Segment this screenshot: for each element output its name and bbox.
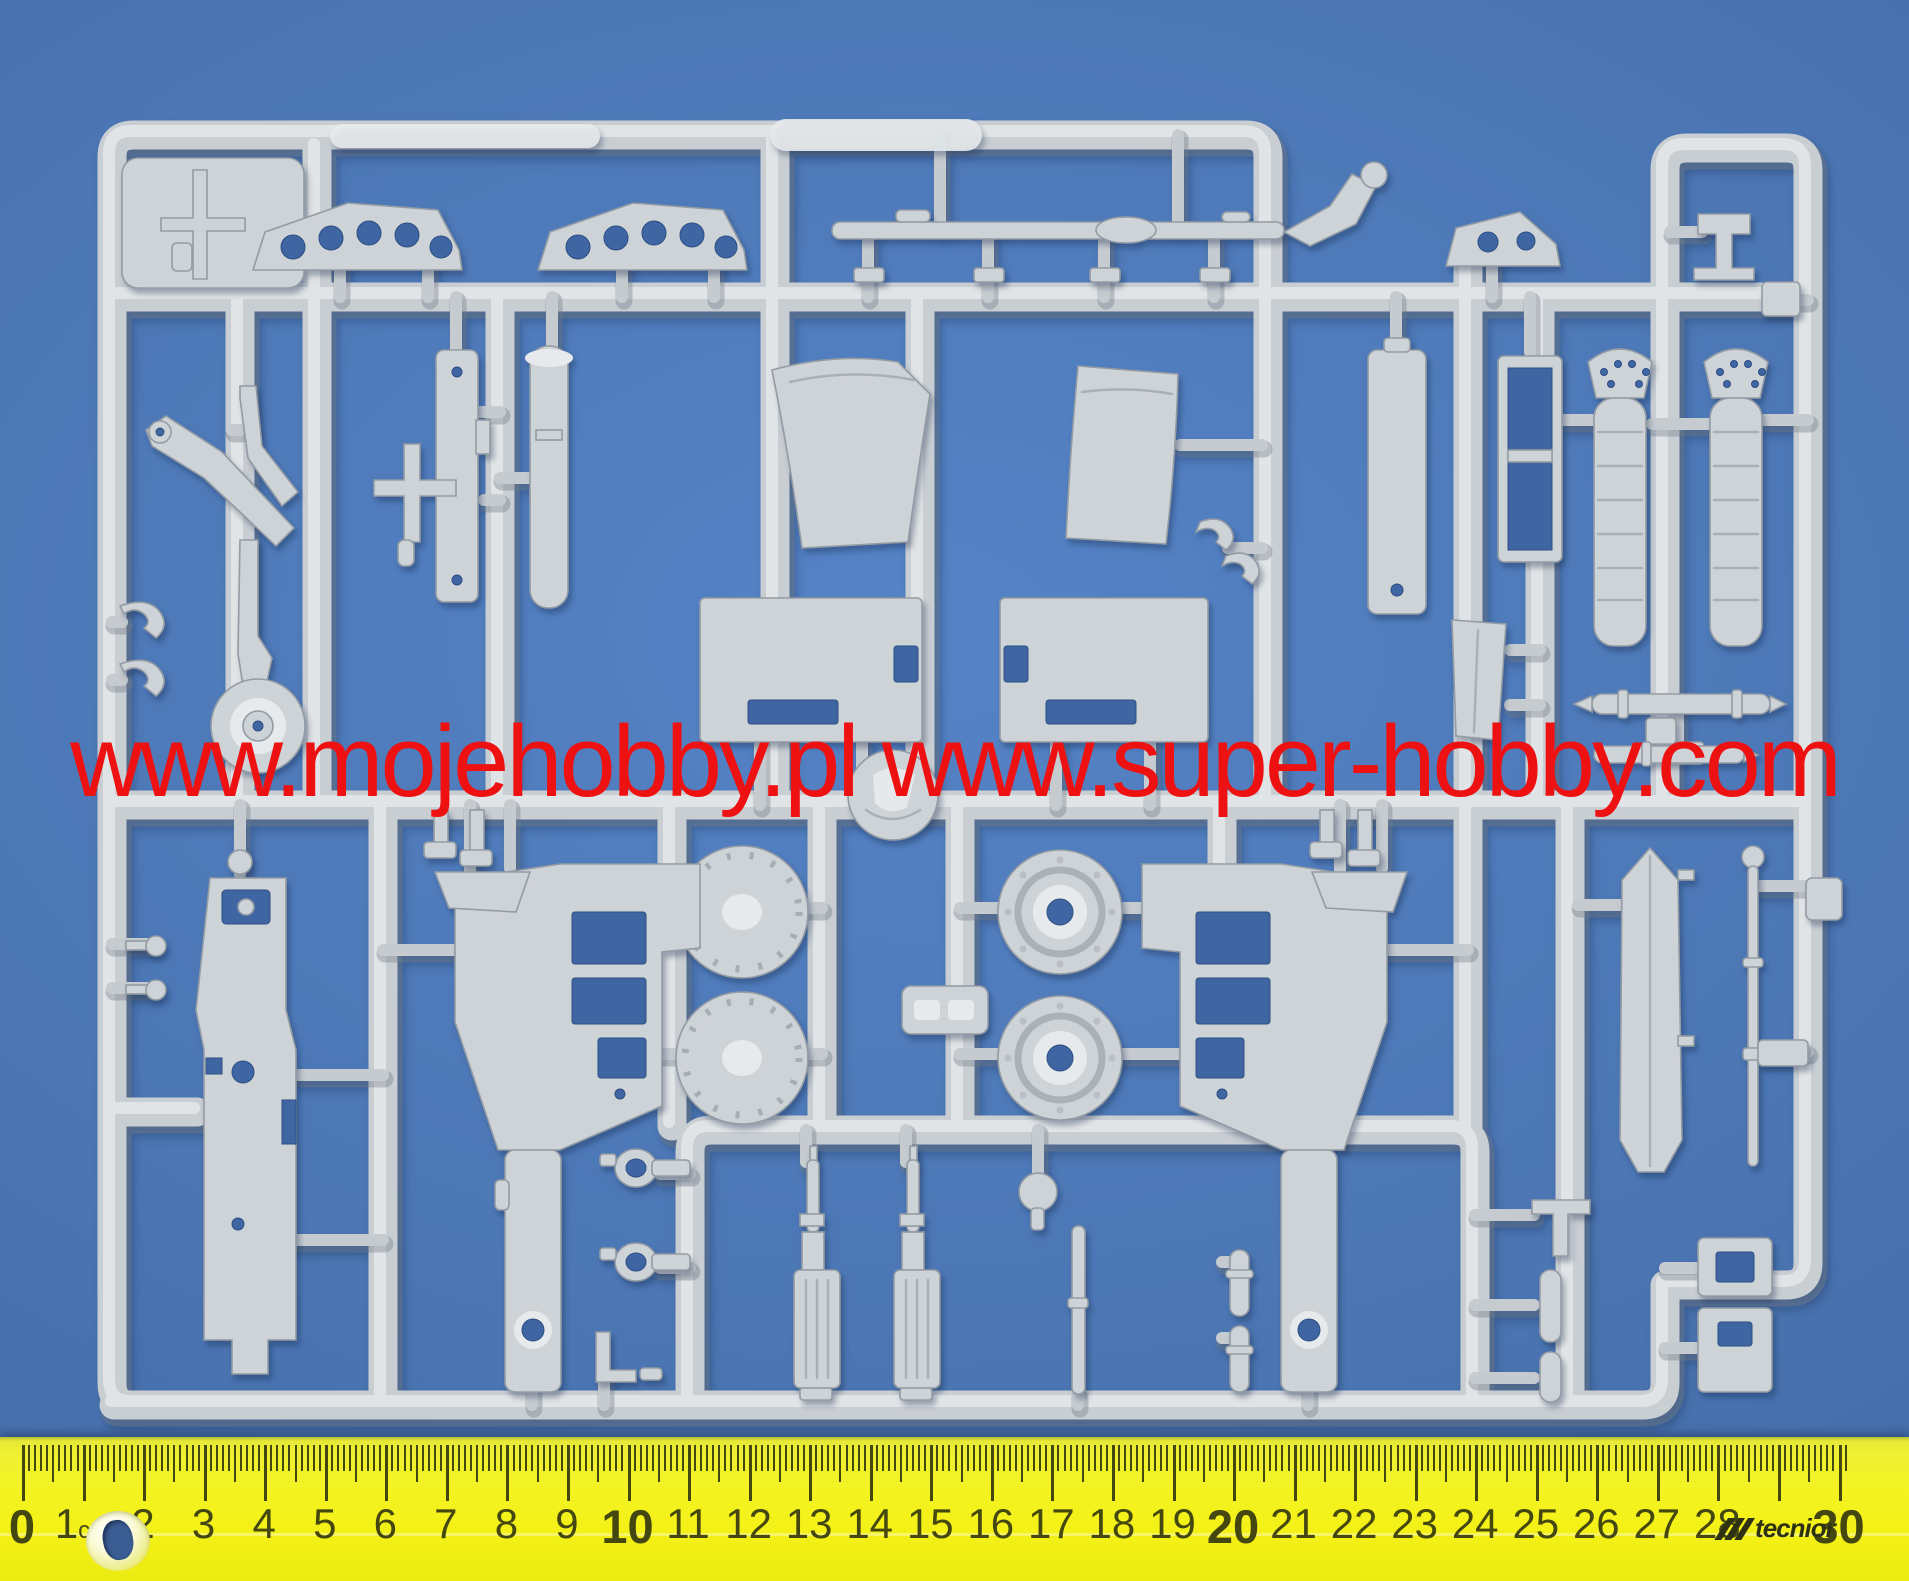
ruler-tick	[422, 1445, 424, 1471]
ruler-tick	[864, 1445, 866, 1471]
ruler-tick	[1717, 1445, 1720, 1501]
ruler-tick	[918, 1445, 920, 1471]
ruler-tick	[313, 1445, 315, 1471]
ruler-tick	[755, 1445, 757, 1471]
ruler-tick	[718, 1445, 720, 1482]
ruler-tick	[1294, 1445, 1297, 1501]
exhaust-stack-right	[1704, 349, 1768, 646]
push-rod	[1068, 1226, 1088, 1394]
ruler-tick	[228, 1445, 230, 1471]
ruler-number: 20	[1207, 1503, 1259, 1550]
ruler-tick	[1057, 1445, 1059, 1471]
ruler-tick	[1076, 1445, 1078, 1471]
ruler-tick	[1378, 1445, 1380, 1471]
ruler-tick	[846, 1445, 848, 1471]
ruler-tick	[876, 1445, 878, 1471]
ruler-tick	[1493, 1445, 1495, 1471]
ruler-tick	[1191, 1445, 1193, 1471]
ruler-tick	[28, 1445, 30, 1471]
ruler-tick	[282, 1445, 284, 1471]
ruler-seam	[0, 1533, 1909, 1536]
ruler-tick	[1796, 1445, 1798, 1471]
ruler-tick	[1263, 1445, 1265, 1482]
ruler-tick	[1088, 1445, 1090, 1471]
ruler-tick	[1820, 1445, 1822, 1471]
ruler-number: 23	[1391, 1503, 1438, 1545]
ruler-tick	[640, 1445, 642, 1471]
ruler-tick	[1003, 1445, 1005, 1471]
ruler-tick	[77, 1445, 79, 1471]
ruler-tick	[585, 1445, 587, 1471]
ruler-tick	[452, 1445, 454, 1471]
ruler-tick	[1760, 1445, 1762, 1471]
ruler-tick	[331, 1445, 333, 1471]
ruler-tick	[567, 1445, 570, 1501]
ruler-tick	[797, 1445, 799, 1471]
ruler-tick	[1348, 1445, 1350, 1471]
ruler-tick	[1766, 1445, 1768, 1471]
ruler-tick	[1742, 1445, 1744, 1471]
ruler-tick	[1705, 1445, 1707, 1471]
ruler-tick	[1530, 1445, 1532, 1471]
ruler-tick	[1118, 1445, 1120, 1471]
ruler-tick	[1481, 1445, 1483, 1471]
ruler-tick	[1112, 1445, 1115, 1501]
ruler-tick	[924, 1445, 926, 1471]
ruler-tick	[1439, 1445, 1441, 1471]
ruler-tick	[888, 1445, 890, 1471]
ruler-brand-text: tecnior	[1755, 1513, 1835, 1544]
ruler-tick	[1499, 1445, 1501, 1471]
ruler-tick	[1160, 1445, 1162, 1471]
ruler-tick	[1009, 1445, 1011, 1471]
ruler-tick	[1288, 1445, 1290, 1471]
ruler-tick	[446, 1445, 449, 1501]
ruler-tick	[1221, 1445, 1223, 1471]
ruler-tick	[621, 1445, 623, 1471]
left-knobs	[126, 936, 166, 1000]
ruler-tick	[1318, 1445, 1320, 1471]
ruler-number: 25	[1512, 1503, 1559, 1545]
ruler-number: 27	[1633, 1503, 1680, 1545]
ruler-tick	[1724, 1445, 1726, 1471]
ruler-tick	[967, 1445, 969, 1471]
ruler-tick	[149, 1445, 151, 1471]
ruler-tick	[34, 1445, 36, 1471]
ruler-tick	[1754, 1445, 1756, 1471]
ruler-tick	[955, 1445, 957, 1471]
ruler-tick	[664, 1445, 666, 1471]
ruler-tick	[609, 1445, 611, 1471]
ruler-tick	[434, 1445, 436, 1471]
ruler-tick	[1209, 1445, 1211, 1471]
ruler-tick	[519, 1445, 521, 1471]
ruler-number: 7	[434, 1503, 457, 1545]
ruler-tick	[1772, 1445, 1774, 1471]
ruler-tick	[113, 1445, 115, 1482]
seat-back-panel-right	[1066, 366, 1178, 544]
ruler-tick	[1251, 1445, 1253, 1471]
ruler-tick	[1663, 1445, 1665, 1471]
ruler-tick	[1100, 1445, 1102, 1471]
ruler-tick	[1336, 1445, 1338, 1471]
ruler-tick	[107, 1445, 109, 1471]
ruler-tick	[258, 1445, 260, 1471]
ruler-tick	[1397, 1445, 1399, 1471]
ruler-tick	[1463, 1445, 1465, 1471]
ruler-number: 8	[495, 1503, 518, 1545]
ruler-hole-inner	[100, 1518, 136, 1563]
ruler-tick	[186, 1445, 188, 1471]
ruler-tick	[1542, 1445, 1544, 1471]
ruler-tick	[70, 1445, 72, 1471]
seat-back-panel-left	[772, 358, 930, 548]
ruler-tick	[1524, 1445, 1526, 1471]
ruler-tick	[95, 1445, 97, 1471]
ruler-tick	[579, 1445, 581, 1471]
ruler-tick	[628, 1445, 631, 1501]
ruler-tick	[1832, 1445, 1834, 1471]
ruler-tick	[591, 1445, 593, 1471]
ruler-tick	[737, 1445, 739, 1471]
ruler-tick	[1215, 1445, 1217, 1471]
ruler-tick	[428, 1445, 430, 1471]
ruler-number: 10	[601, 1503, 653, 1550]
ruler-tick	[1148, 1445, 1150, 1471]
ruler-tick	[1330, 1445, 1332, 1471]
ruler-tick	[1548, 1445, 1550, 1471]
ruler-tick	[464, 1445, 466, 1471]
ruler-tick	[416, 1445, 418, 1482]
ruler-number: 11	[666, 1503, 710, 1545]
wedge-chip-left	[435, 872, 530, 912]
ruler-tick	[1173, 1445, 1176, 1501]
ruler-tick	[1675, 1445, 1677, 1471]
ruler-tick	[1300, 1445, 1302, 1471]
machine-gun-body-right	[894, 1146, 940, 1400]
ruler-tick	[1590, 1445, 1592, 1471]
fuel-tank	[1620, 848, 1694, 1172]
wheel-disc-smooth-lower	[676, 992, 808, 1124]
ruler-number: 19	[1149, 1503, 1196, 1545]
ruler-tick	[276, 1445, 278, 1471]
ruler-tick	[1536, 1445, 1539, 1501]
ruler-tick	[1384, 1445, 1386, 1482]
ruler-tick	[288, 1445, 290, 1471]
ruler-tick	[1366, 1445, 1368, 1471]
ruler-tick	[1372, 1445, 1374, 1471]
ruler-tick	[779, 1445, 781, 1482]
ruler-tick	[440, 1445, 442, 1471]
right-lower-plates	[1698, 1238, 1772, 1392]
ball-lever	[1019, 1173, 1057, 1230]
ruler-tick	[210, 1445, 212, 1471]
ruler-tick	[40, 1445, 42, 1471]
ruler-number: 14	[846, 1503, 893, 1545]
ruler-tick	[1245, 1445, 1247, 1471]
ruler-tick	[1554, 1445, 1556, 1471]
ruler-tick	[1227, 1445, 1229, 1471]
ruler-tick	[125, 1445, 127, 1471]
ruler-tick	[1306, 1445, 1308, 1471]
ruler-tick	[506, 1445, 509, 1501]
ruler-tick	[240, 1445, 242, 1471]
ruler-tick	[1106, 1445, 1108, 1471]
l-pin	[596, 1332, 662, 1382]
wing-spar-c	[1446, 212, 1560, 266]
ruler-tick	[319, 1445, 321, 1471]
ruler-tick	[676, 1445, 678, 1471]
wheel-hub-lower	[998, 996, 1122, 1120]
ruler-tick	[1615, 1445, 1617, 1471]
ruler-tick	[1433, 1445, 1435, 1471]
ruler-tick	[706, 1445, 708, 1471]
ruler-tick	[1033, 1445, 1035, 1471]
ruler-tick	[1469, 1445, 1471, 1471]
ruler-tick	[58, 1445, 60, 1471]
ruler-number: 4	[253, 1503, 276, 1545]
ruler-tick	[1475, 1445, 1478, 1501]
ruler-tick	[222, 1445, 224, 1471]
ruler-tick	[991, 1445, 994, 1501]
ruler-number: 24	[1452, 1503, 1499, 1545]
ruler-tick	[791, 1445, 793, 1471]
ruler-tick	[1560, 1445, 1562, 1471]
ruler-tick	[730, 1445, 732, 1471]
ruler-tick	[1421, 1445, 1423, 1471]
ruler-tick	[1826, 1445, 1828, 1471]
ruler-tick	[803, 1445, 805, 1471]
framed-access-panel	[1498, 356, 1562, 562]
ruler-tick	[1427, 1445, 1429, 1471]
ruler-tick	[458, 1445, 460, 1471]
ruler-tick	[1354, 1445, 1357, 1501]
ruler-number: 5	[313, 1503, 336, 1545]
ruler-tick	[52, 1445, 54, 1482]
watermark-text: www.mojehobby.pl www.super-hobby.com	[0, 712, 1909, 813]
ruler-tick	[906, 1445, 908, 1471]
ruler-tick	[1639, 1445, 1641, 1471]
ruler-tick	[343, 1445, 345, 1471]
ruler-tick	[852, 1445, 854, 1471]
ruler-tick	[385, 1445, 388, 1501]
ruler-tick	[1687, 1445, 1689, 1482]
ruler-tick	[349, 1445, 351, 1471]
ruler: 01cm234567891011121314151617181920212223…	[0, 1437, 1909, 1581]
ruler-number: 9	[555, 1503, 578, 1545]
ruler-tick	[301, 1445, 303, 1471]
ruler-tick	[1239, 1445, 1241, 1471]
tall-support-bar	[1368, 338, 1426, 614]
ruler-tick	[1506, 1445, 1508, 1482]
ruler-tick	[1784, 1445, 1786, 1471]
ruler-tick	[785, 1445, 787, 1471]
ruler-tick	[1179, 1445, 1181, 1471]
ruler-tick	[1778, 1445, 1781, 1501]
ruler-tick	[1645, 1445, 1647, 1471]
ruler-tick	[1814, 1445, 1816, 1471]
ruler-tick	[361, 1445, 363, 1471]
ruler-tick	[773, 1445, 775, 1471]
ruler-tick	[815, 1445, 817, 1471]
ruler-tick	[936, 1445, 938, 1471]
ruler-number: 3	[192, 1503, 215, 1545]
ruler-tick	[1136, 1445, 1138, 1471]
ruler-tick	[603, 1445, 605, 1471]
wedge-chip-right	[1312, 872, 1407, 912]
ruler-tick	[119, 1445, 121, 1471]
ruler-hole	[86, 1511, 150, 1571]
ruler-tick	[1596, 1445, 1599, 1501]
ruler-tick	[1403, 1445, 1405, 1471]
ruler-tick	[397, 1445, 399, 1471]
ruler-tick	[646, 1445, 648, 1471]
ruler-tick	[131, 1445, 133, 1471]
ruler-tick	[161, 1445, 163, 1471]
ruler-tick	[173, 1445, 175, 1482]
ruler-tick	[391, 1445, 393, 1471]
part-number-tab	[902, 986, 988, 1034]
ruler-tick	[1269, 1445, 1271, 1471]
ruler-tick	[367, 1445, 369, 1471]
ruler-tick	[1094, 1445, 1096, 1471]
ruler-number: 16	[967, 1503, 1014, 1545]
ruler-tick	[1487, 1445, 1489, 1471]
ruler-tick	[561, 1445, 563, 1471]
ruler-tick	[1845, 1445, 1847, 1471]
ruler-tick	[1584, 1445, 1586, 1471]
ruler-tick	[1730, 1445, 1732, 1471]
ruler-tick	[1802, 1445, 1804, 1471]
ruler-number: 15	[907, 1503, 954, 1545]
ruler-tick	[525, 1445, 527, 1471]
ruler-tick	[1651, 1445, 1653, 1471]
ruler-tick	[839, 1445, 841, 1482]
ruler-tick	[961, 1445, 963, 1482]
ruler-tick	[942, 1445, 944, 1471]
ruler-tick	[1699, 1445, 1701, 1471]
ruler-tick	[1518, 1445, 1520, 1471]
ruler-tick	[827, 1445, 829, 1471]
ruler-tick	[700, 1445, 702, 1471]
ruler-tick	[488, 1445, 490, 1471]
ruler-tick	[1512, 1445, 1514, 1471]
ruler-tick	[494, 1445, 496, 1471]
ruler-tick	[137, 1445, 139, 1471]
ruler-tick	[1457, 1445, 1459, 1471]
ruler-brand: tecnior	[1721, 1513, 1835, 1544]
ruler-tick	[1275, 1445, 1277, 1471]
machine-gun-body-left	[794, 1146, 840, 1400]
ruler-tick	[1578, 1445, 1580, 1471]
ruler-tick	[179, 1445, 181, 1471]
ruler-number: 12	[725, 1503, 772, 1545]
ruler-tick	[204, 1445, 207, 1501]
ruler-tick	[1602, 1445, 1604, 1471]
ruler-tick	[1064, 1445, 1066, 1471]
ruler-number: 26	[1573, 1503, 1620, 1545]
ruler-tick	[1693, 1445, 1695, 1471]
ruler-tick	[1736, 1445, 1738, 1471]
ruler-tick	[1257, 1445, 1259, 1471]
ruler-tick	[573, 1445, 575, 1471]
ruler-tick	[912, 1445, 914, 1471]
ruler-tick	[1808, 1445, 1810, 1482]
ruler-tick	[234, 1445, 236, 1482]
ruler-tick	[513, 1445, 515, 1471]
ruler-tick	[694, 1445, 696, 1471]
ruler-tick	[1154, 1445, 1156, 1471]
ruler-tick	[270, 1445, 272, 1471]
ruler-tick	[1082, 1445, 1084, 1482]
ruler-tick	[555, 1445, 557, 1471]
ruler-tick	[652, 1445, 654, 1471]
ruler-tick	[22, 1445, 25, 1501]
ruler-tick	[1390, 1445, 1392, 1471]
ruler-tick	[1142, 1445, 1144, 1482]
ruler-tick	[325, 1445, 328, 1501]
ruler-tick	[1281, 1445, 1283, 1471]
ruler-tick	[985, 1445, 987, 1471]
ruler-tick	[1233, 1445, 1236, 1501]
ruler-tick	[355, 1445, 357, 1482]
ruler-tick	[749, 1445, 752, 1501]
ruler-tick	[537, 1445, 539, 1482]
ruler-tick	[1669, 1445, 1671, 1471]
ruler-tick	[1572, 1445, 1574, 1471]
ruler-tick	[337, 1445, 339, 1471]
ruler-tick	[83, 1445, 86, 1501]
ruler-tick	[979, 1445, 981, 1471]
ruler-tick	[670, 1445, 672, 1471]
ruler-tick	[1415, 1445, 1418, 1501]
ruler-tick	[531, 1445, 533, 1471]
ruler-number: 21	[1270, 1503, 1317, 1545]
ruler-tick	[894, 1445, 896, 1471]
ruler-tick	[1409, 1445, 1411, 1471]
ruler-tick	[246, 1445, 248, 1471]
ruler-number: 0	[9, 1503, 35, 1550]
ruler-tick	[216, 1445, 218, 1471]
ruler-tick	[1657, 1445, 1660, 1501]
wing-spar-b	[538, 203, 747, 270]
ruler-tick	[379, 1445, 381, 1471]
ruler-tick	[682, 1445, 684, 1471]
ruler-tick	[1681, 1445, 1683, 1471]
ruler-number: 17	[1028, 1503, 1075, 1545]
ruler-tick	[295, 1445, 297, 1482]
ruler-tick	[1070, 1445, 1072, 1471]
ruler-tick	[858, 1445, 860, 1471]
ruler-tick	[1027, 1445, 1029, 1471]
ruler-tick	[252, 1445, 254, 1471]
ruler-tick	[1566, 1445, 1568, 1482]
ruler-tick	[500, 1445, 502, 1471]
ruler-number: 13	[786, 1503, 833, 1545]
ruler-number: 18	[1089, 1503, 1136, 1545]
ruler-tick	[1124, 1445, 1126, 1471]
ruler-tick	[833, 1445, 835, 1471]
ruler-tick	[482, 1445, 484, 1471]
ruler-tick	[404, 1445, 406, 1471]
ruler-tick	[767, 1445, 769, 1471]
ruler-tick	[761, 1445, 763, 1471]
support-cylinder	[525, 346, 573, 608]
ruler-tick	[870, 1445, 873, 1501]
ruler-tick	[1045, 1445, 1047, 1471]
ruler-tick	[1451, 1445, 1453, 1471]
ruler-tick	[410, 1445, 412, 1471]
